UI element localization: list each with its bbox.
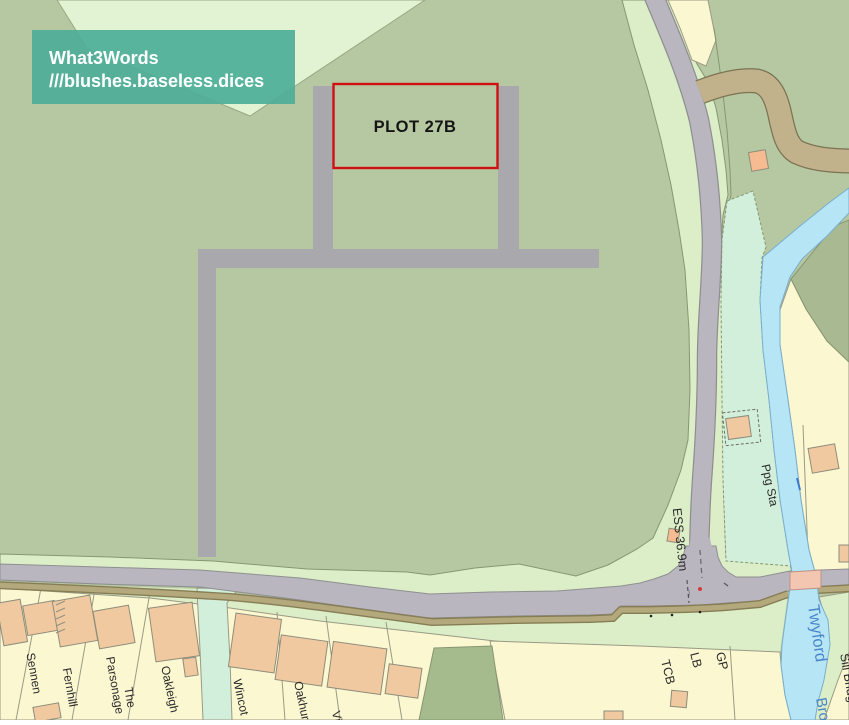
svg-text:Vi: Vi <box>329 710 345 720</box>
svg-text:What3Words: What3Words <box>49 48 159 68</box>
svg-text:///blushes.baseless.dices: ///blushes.baseless.dices <box>49 71 264 91</box>
svg-text:Bro: Bro <box>812 696 833 720</box>
svg-text:PLOT 27B: PLOT 27B <box>374 118 457 136</box>
